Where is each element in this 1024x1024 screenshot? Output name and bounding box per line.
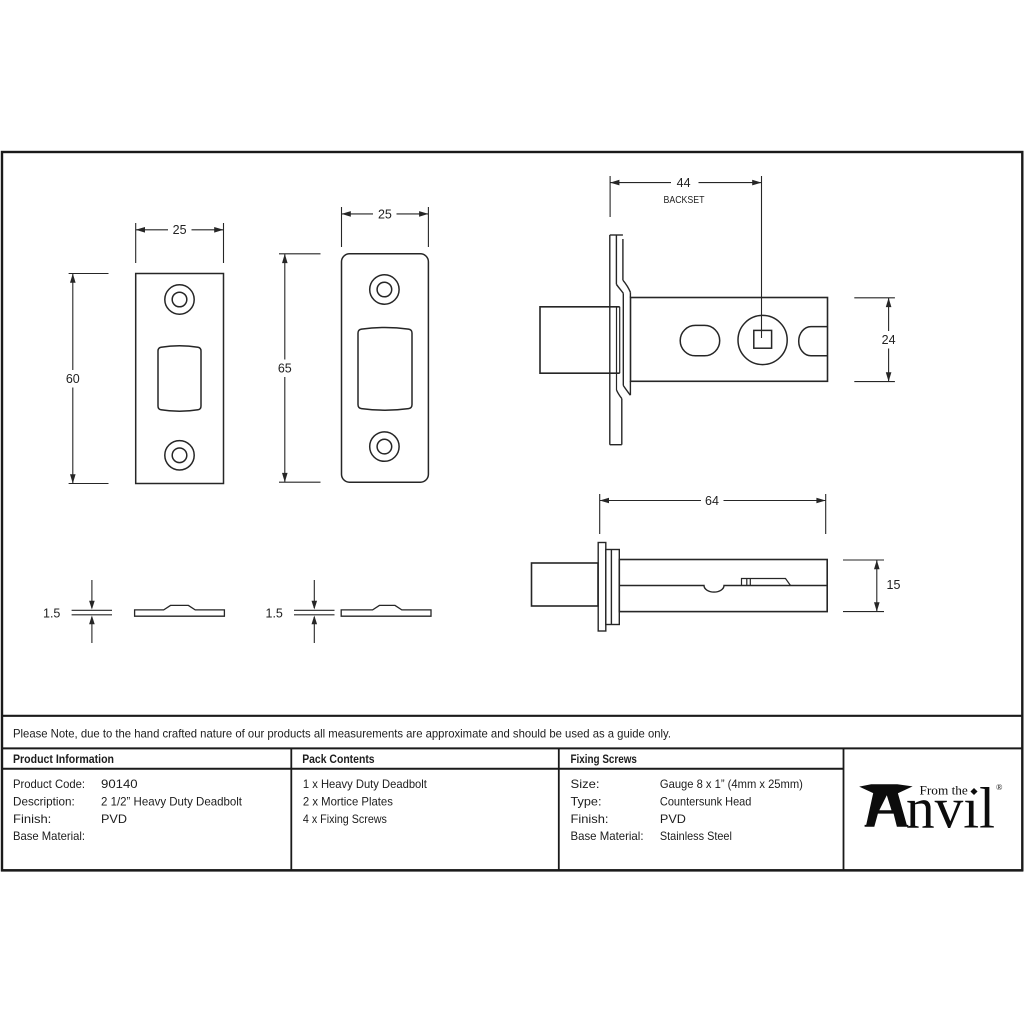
svg-text:®: ® [996,782,1003,792]
svg-text:65: 65 [278,362,292,376]
svg-text:25: 25 [378,207,392,221]
svg-text:Base Material:: Base Material: [13,829,85,843]
svg-text:60: 60 [66,372,80,386]
svg-text:24: 24 [882,333,896,347]
svg-text:Finish:PVD: Finish:PVD [571,812,687,826]
svg-text:Base Material:Stainless Steel: Base Material:Stainless Steel [571,829,732,843]
svg-text:25: 25 [173,223,187,237]
svg-text:4 x Fixing Screws: 4 x Fixing Screws [303,812,387,826]
svg-text:15: 15 [887,578,901,592]
svg-text:From the: From the [920,783,969,797]
svg-text:Size:Gauge 8 x 1” (4mm x 25mm): Size:Gauge 8 x 1” (4mm x 25mm) [571,777,803,791]
svg-text:BACKSET: BACKSET [664,194,705,206]
svg-text:1.5: 1.5 [266,607,283,621]
svg-text:1.5: 1.5 [43,607,60,621]
svg-text:Fixing Screws: Fixing Screws [571,752,638,766]
svg-text:Please Note, due to the hand c: Please Note, due to the hand crafted nat… [13,727,671,741]
svg-text:Finish:PVD: Finish:PVD [13,812,127,826]
svg-text:Description:2 1/2” Heavy Duty: Description:2 1/2” Heavy Duty Deadbolt [13,795,243,809]
svg-text:Pack Contents: Pack Contents [302,752,375,766]
svg-text:Type:Countersunk Head: Type:Countersunk Head [571,795,752,809]
svg-text:Product Code:90140: Product Code:90140 [13,777,138,791]
svg-text:44: 44 [677,176,691,190]
svg-text:2 x Mortice Plates: 2 x Mortice Plates [303,795,393,809]
svg-text:64: 64 [705,494,719,508]
svg-text:Product Information: Product Information [13,752,114,766]
svg-text:1 x Heavy Duty Deadbolt: 1 x Heavy Duty Deadbolt [303,777,428,791]
